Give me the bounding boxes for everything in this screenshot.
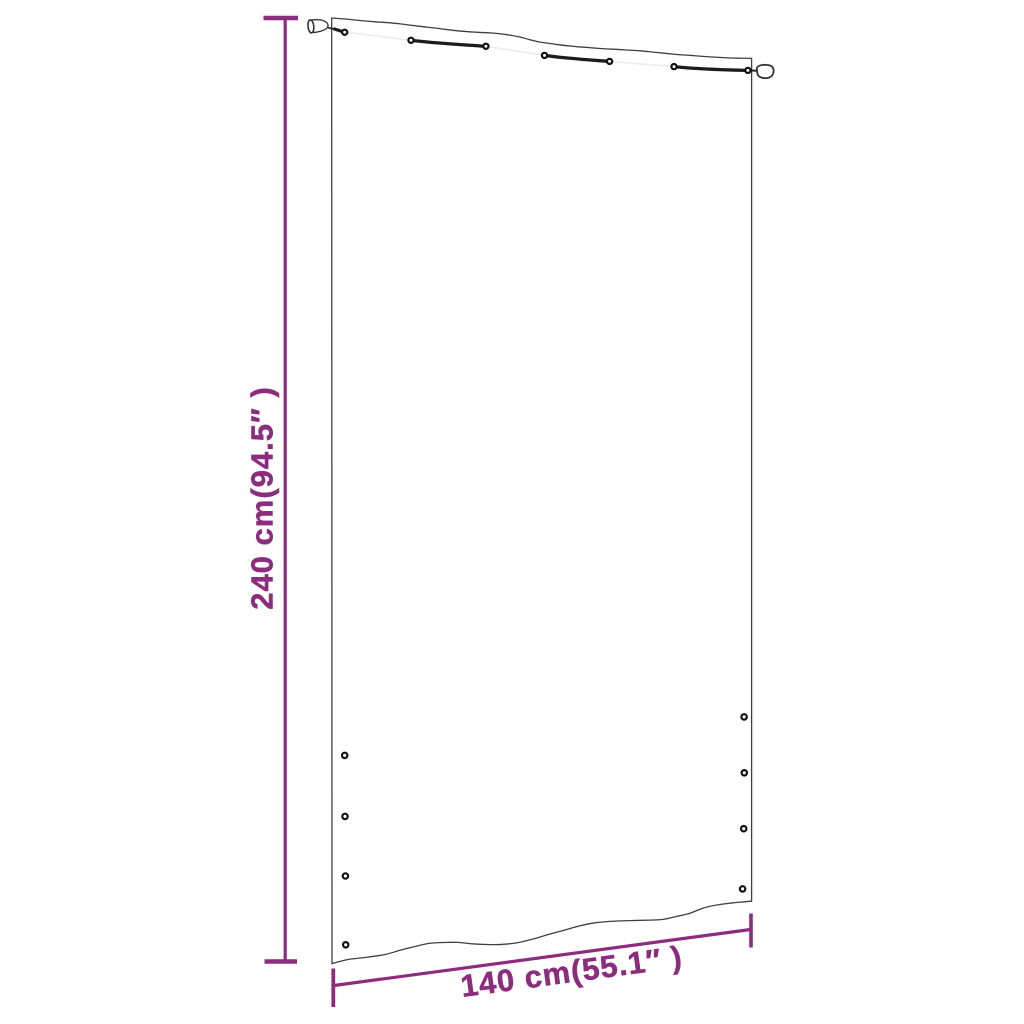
- svg-text:240 cm(94.5″ ): 240 cm(94.5″ ): [245, 386, 280, 610]
